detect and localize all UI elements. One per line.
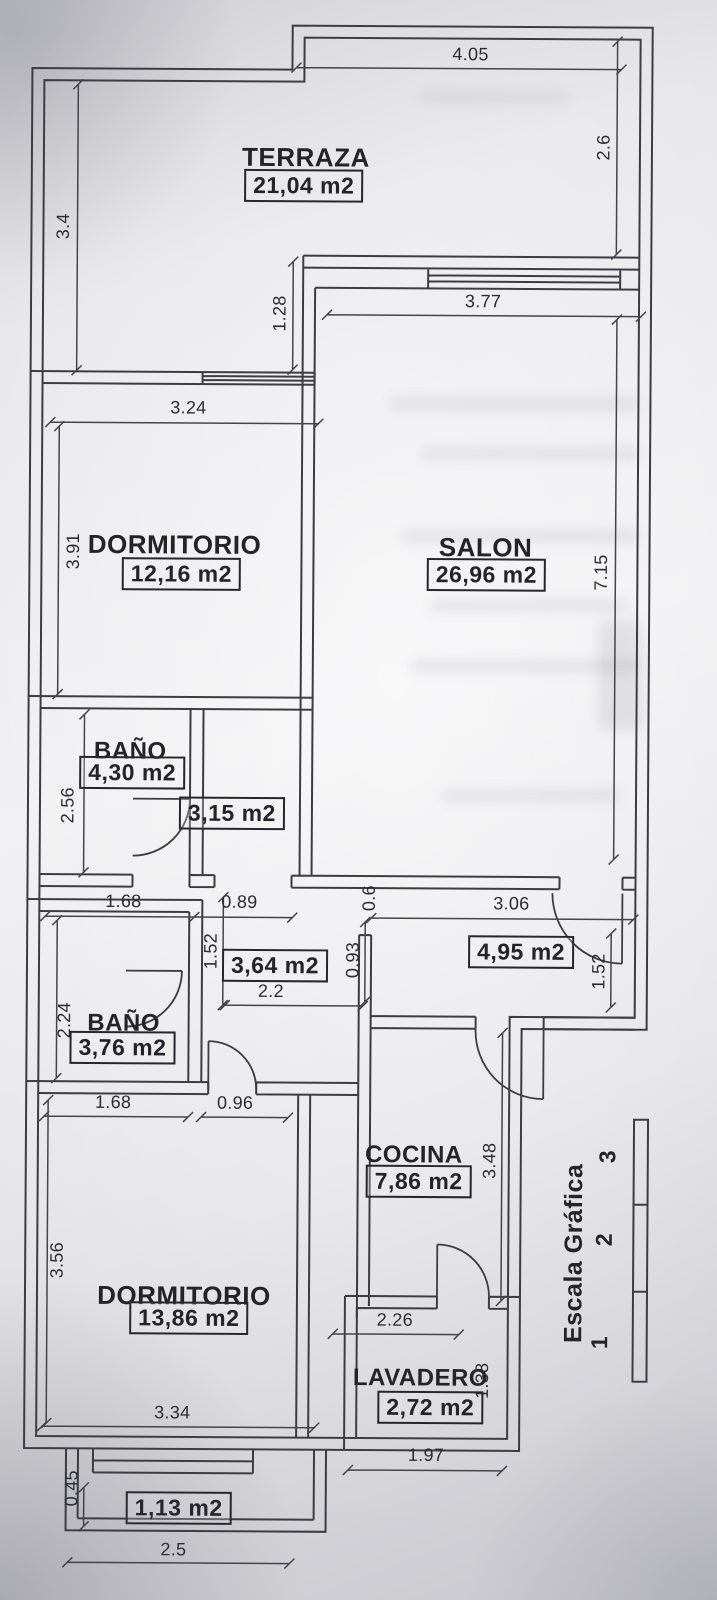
- dim-hall2-left: 1.52: [200, 933, 221, 969]
- dim-hall2-low: 0.96: [217, 1093, 253, 1114]
- dimline-bano1-left: [79, 709, 90, 877]
- dimline-hall2-bottom: [220, 1000, 368, 1011]
- scale-tick-1: 1: [586, 1336, 613, 1349]
- area-box-salon: 26,96 m2: [427, 558, 546, 591]
- dim-hall3-top: 3.06: [493, 893, 529, 914]
- dimline-row2: [39, 1111, 293, 1123]
- dim-hall3-door: 1.52: [588, 953, 609, 989]
- dim-bano1-bottom: 1.68: [105, 891, 141, 912]
- door-dorm2: [208, 1041, 256, 1089]
- room-label-dormitorio1: DORMITORIO: [88, 529, 262, 561]
- wall-dorm2-right: [296, 1095, 310, 1438]
- dim-dorm2-left: 3.56: [47, 1242, 68, 1278]
- dimline-bano2-left: [51, 915, 62, 1083]
- dim-terraza-right: 2.6: [593, 134, 614, 160]
- area-box-terraza: 21,04 m2: [244, 169, 363, 202]
- dim-balcon-bottom: 2.5: [160, 1539, 186, 1560]
- scale-tick-3: 3: [594, 1150, 621, 1163]
- area-box-hall3: 4,95 m2: [468, 935, 574, 968]
- dimline-dorm1-top: [45, 417, 323, 429]
- dimline-hall3-top: [366, 913, 638, 925]
- dim-hall1-bottom: 0.89: [221, 892, 257, 913]
- dim-dorm1-top: 3.24: [170, 397, 206, 418]
- dim-dorm1-left: 3.91: [63, 533, 84, 569]
- wall-dorm2-top: [26, 1081, 358, 1095]
- dim-lavadero-right: 1.38: [472, 1363, 493, 1399]
- dim-hall2-mid: 0.93: [342, 942, 363, 978]
- dim-hall-pass: 0.6: [359, 885, 380, 911]
- area-box-bano1: 4,30 m2: [79, 756, 185, 789]
- wall-salon-top: [303, 256, 639, 290]
- dim-lavadero-bottom: 1.97: [408, 1445, 444, 1466]
- area-box-hall1: 3,15 m2: [179, 797, 285, 830]
- dim-salon-top: 3.77: [465, 291, 501, 312]
- wall-middle: [39, 874, 635, 890]
- area-box-lavadero: 2,72 m2: [377, 1391, 483, 1424]
- room-label-lavadero: LAVADERO: [353, 1364, 488, 1393]
- wall-bano2-right: [188, 900, 202, 1082]
- dim-dorm2-bottom: 3.34: [154, 1402, 190, 1423]
- wall-cocina-left: [357, 935, 371, 1318]
- dim-cocina-right: 3.48: [479, 1143, 500, 1179]
- floorplan-drawing: [0, 0, 717, 1600]
- floorplan-photo: TERRAZA DORMITORIO SALON BAÑO BAÑO COCIN…: [0, 0, 717, 1600]
- dimline-lavadero-bottom: [343, 1465, 507, 1476]
- area-box-balcon: 1,13 m2: [126, 1491, 232, 1524]
- area-box-cocina: 7,86 m2: [366, 1165, 472, 1198]
- wall-dorm1-bottom: [29, 696, 313, 710]
- area-box-hall2: 3,64 m2: [222, 949, 328, 982]
- dim-bano1-left: 2.56: [57, 787, 78, 823]
- floorplan: TERRAZA DORMITORIO SALON BAÑO BAÑO COCIN…: [0, 0, 717, 1600]
- dim-step: 1.28: [269, 295, 290, 331]
- dim-hall2-bottom: 2.2: [258, 981, 284, 1002]
- wall-salon-left: [300, 256, 316, 876]
- door-lavadero: [437, 1244, 489, 1296]
- dim-balcon-left: 0.45: [61, 1470, 82, 1506]
- area-box-dormitorio1: 12,16 m2: [122, 557, 241, 590]
- area-box-bano2: 3,76 m2: [69, 1031, 175, 1064]
- window-dorm2: [93, 1448, 253, 1473]
- dim-bano2-bottom: 1.68: [95, 1092, 131, 1113]
- scale-bar-label: Escala Gráfica: [559, 1164, 589, 1344]
- dim-salon-right: 7.15: [591, 554, 612, 590]
- wall-cocina-top: [371, 1016, 635, 1030]
- dim-cocina-bottom: 2.26: [377, 1310, 413, 1331]
- scale-bar: [632, 1120, 648, 1382]
- wall-bano1-right: [190, 709, 204, 875]
- dim-bano2-left: 2.24: [54, 1002, 75, 1038]
- dim-terraza-top: 4.05: [452, 44, 488, 65]
- scale-tick-2: 2: [591, 1233, 618, 1246]
- dim-terraza-left: 3.4: [53, 213, 74, 239]
- area-box-dormitorio2: 13,86 m2: [129, 1301, 248, 1334]
